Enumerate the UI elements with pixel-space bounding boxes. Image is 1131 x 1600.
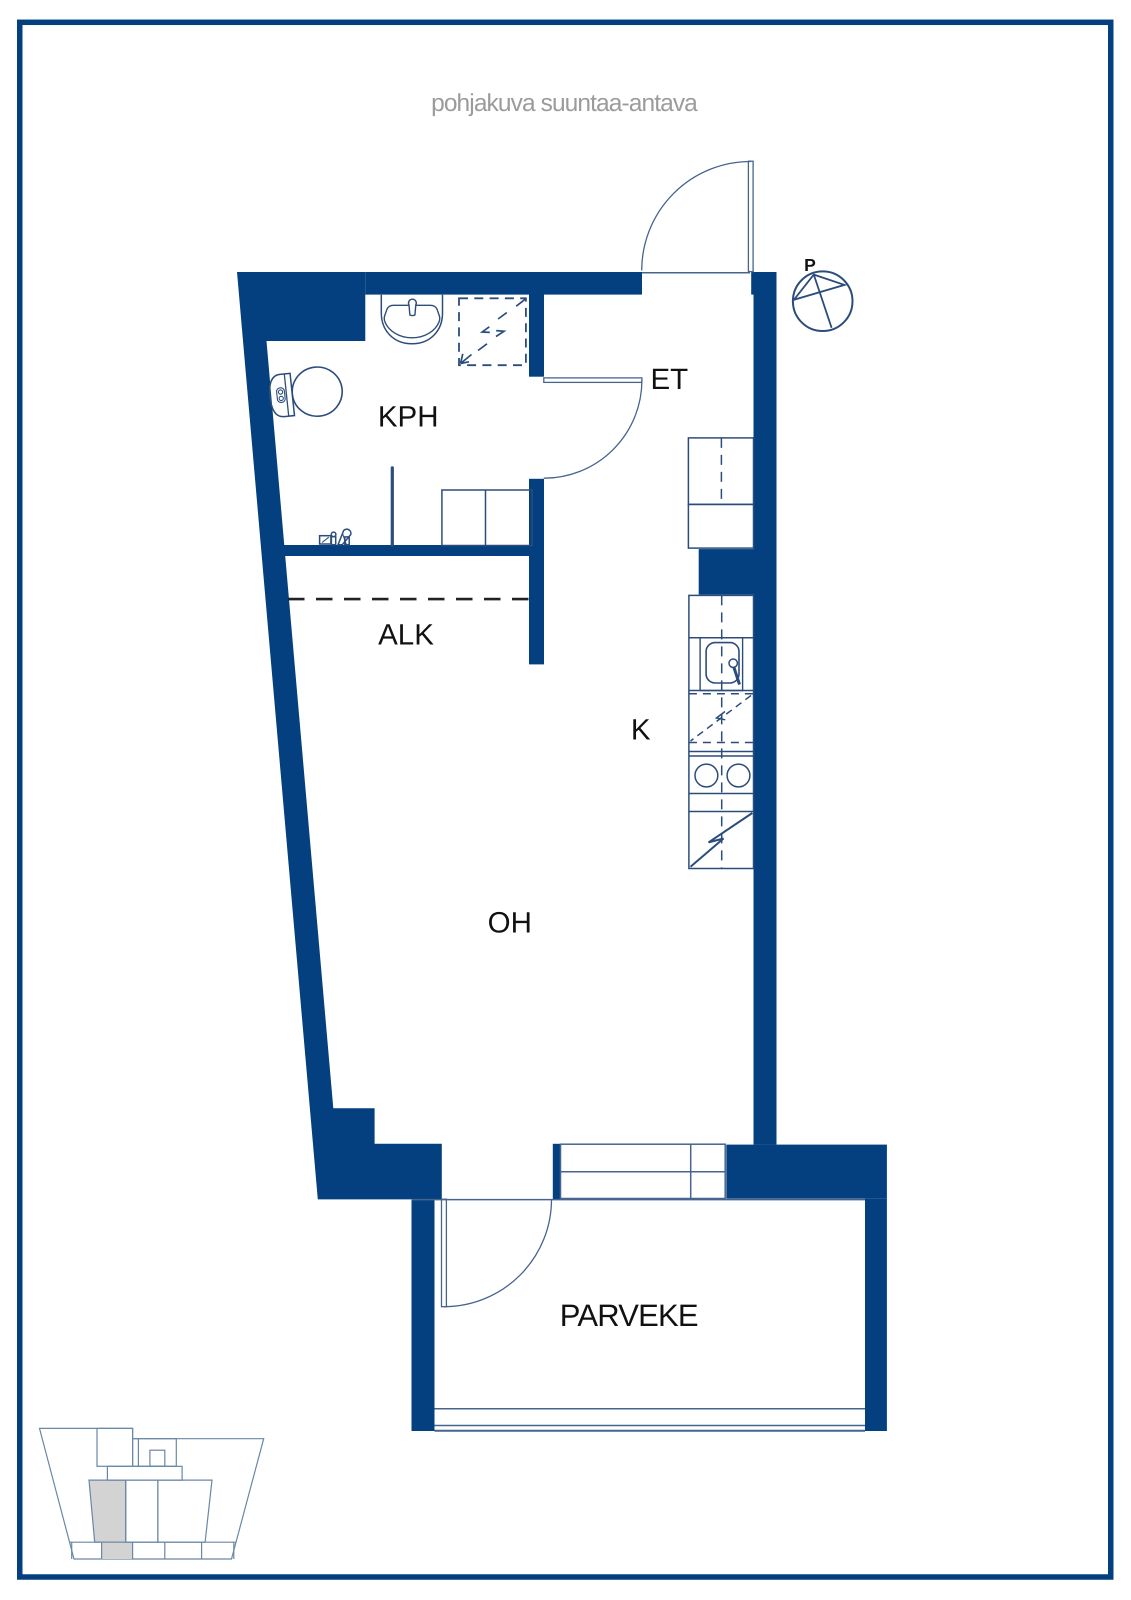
svg-text:KPH: KPH (378, 400, 439, 433)
svg-text:K: K (631, 713, 651, 746)
svg-text:PARVEKE: PARVEKE (560, 1298, 698, 1333)
svg-text:ET: ET (650, 363, 688, 396)
svg-text:OH: OH (488, 907, 532, 940)
svg-text:pohjakuva suuntaa-antava: pohjakuva suuntaa-antava (431, 90, 698, 117)
svg-text:P: P (804, 255, 816, 275)
svg-text:ALK: ALK (378, 619, 434, 652)
